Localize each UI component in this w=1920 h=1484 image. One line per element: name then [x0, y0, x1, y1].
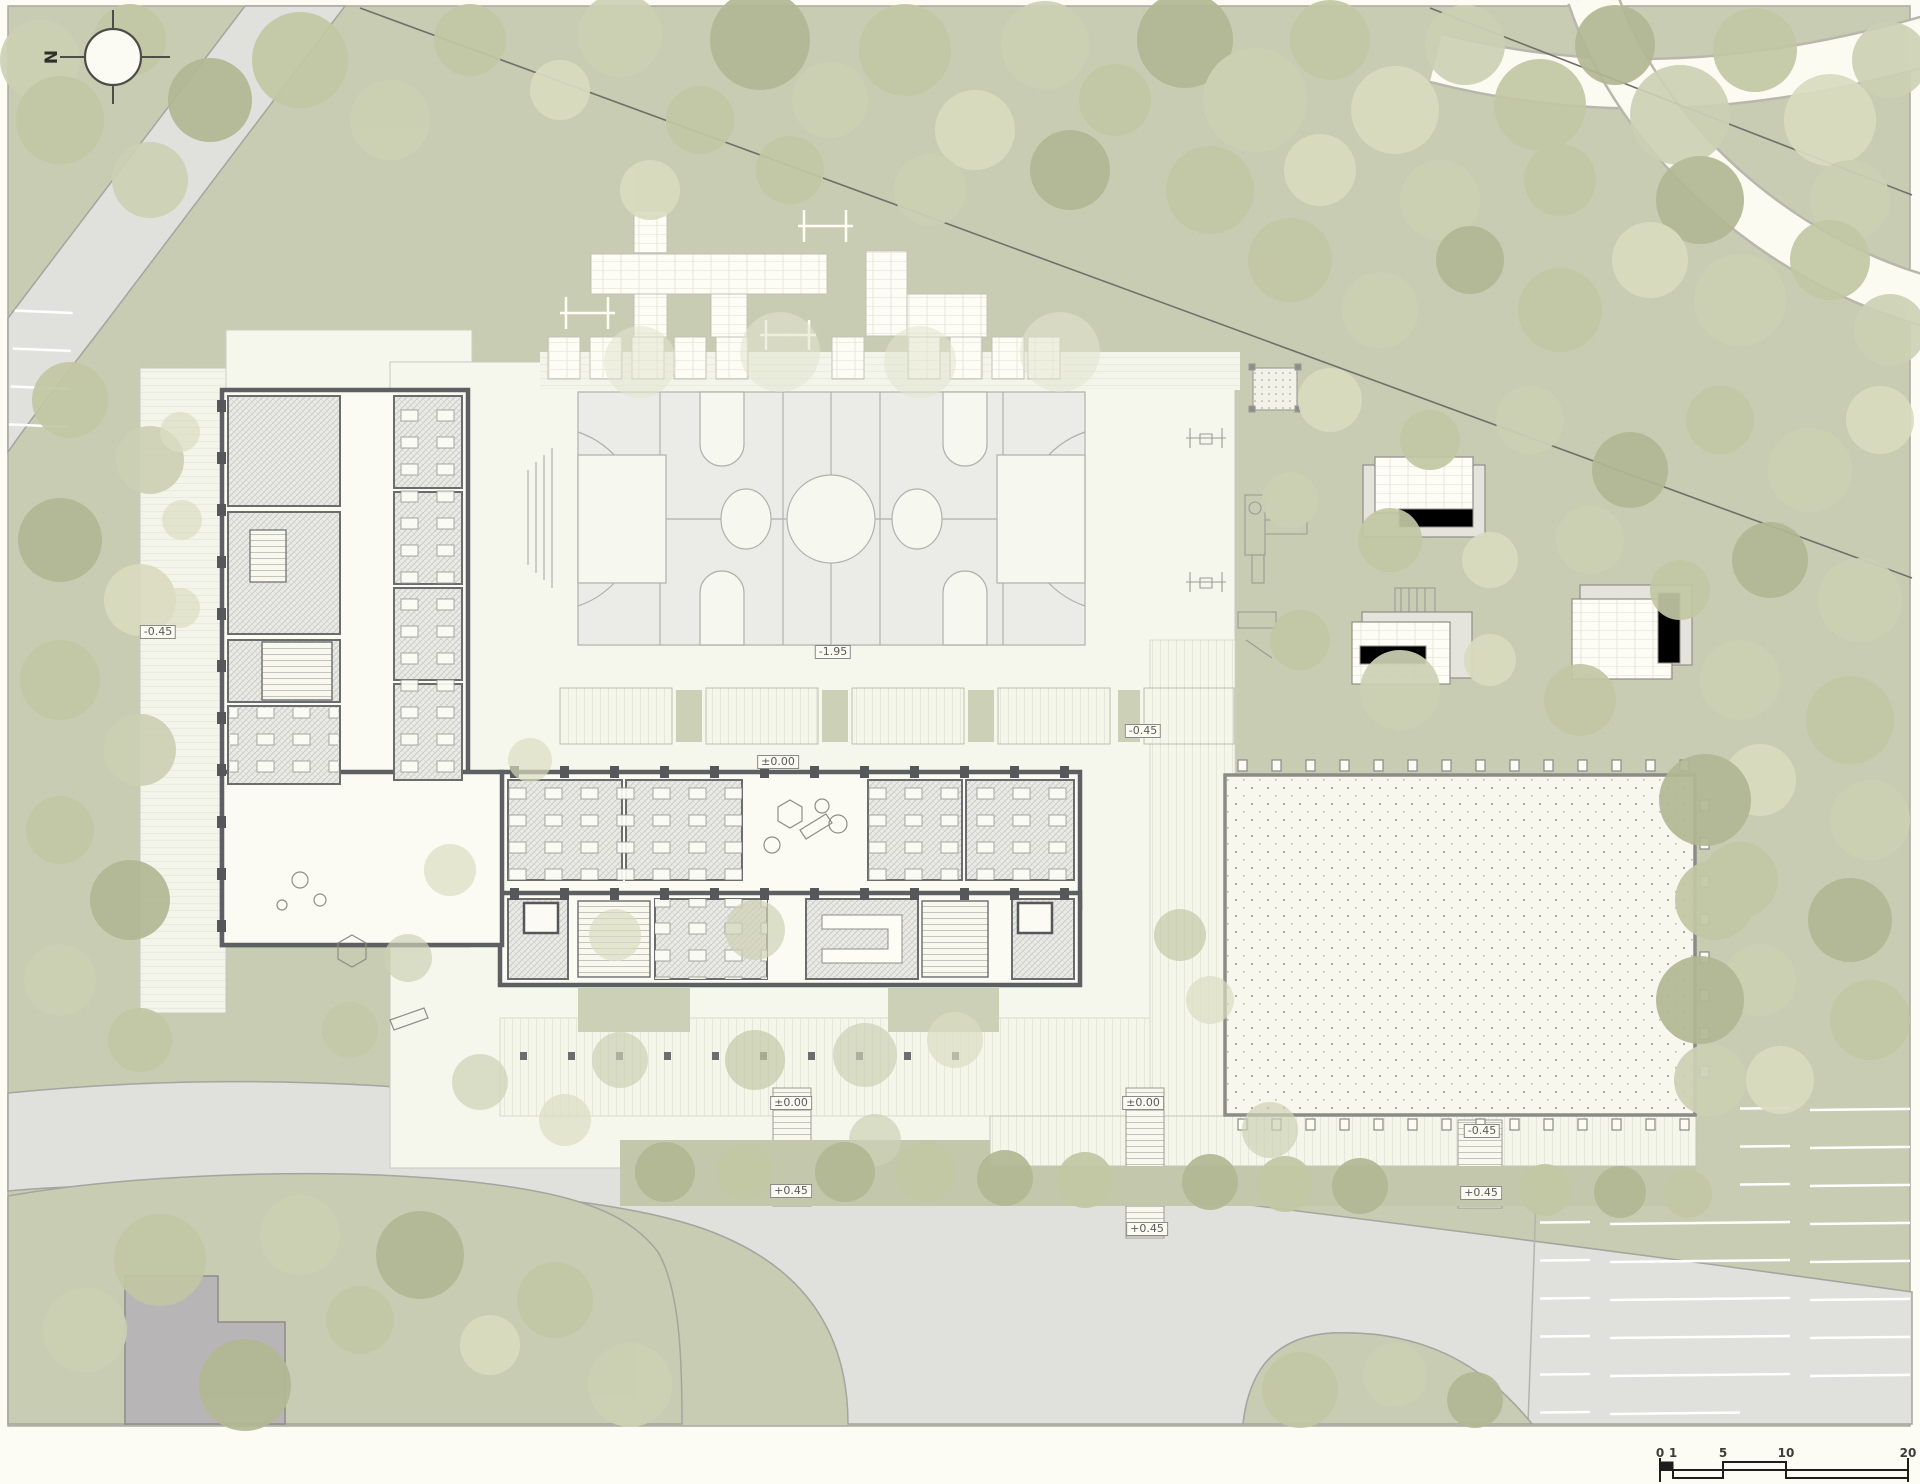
- north-label: N: [42, 50, 62, 64]
- scale-tick-1: 1: [1669, 1446, 1677, 1460]
- elevation-label-canopy-walkway: -0.45: [1464, 1124, 1500, 1138]
- scale-tick-20: 20: [1900, 1446, 1917, 1460]
- elevation-label-sports-court: -1.95: [815, 645, 851, 659]
- scale-tick-10: 10: [1778, 1446, 1795, 1460]
- scale-tick-5: 5: [1719, 1446, 1727, 1460]
- site-plan-drawing: N: [0, 0, 1920, 1484]
- elevation-label-west-forecourt: -0.45: [140, 625, 176, 639]
- elevation-label-south-ramp-1-bottom: +0.45: [770, 1184, 812, 1198]
- elevation-label-south-ramp-2-bottom: +0.45: [1126, 1222, 1168, 1236]
- elevation-label-south-ramp-2-top: ±0.00: [1122, 1096, 1164, 1110]
- elevation-label-south-ramp-3: +0.45: [1460, 1186, 1502, 1200]
- elevation-label-north-terrace: ±0.00: [757, 755, 799, 769]
- site-plan: N -0.45-1.95-0.45±0.00±0.00+0.45±0.00+0.…: [0, 0, 1920, 1484]
- scale-tick-0: 0: [1656, 1446, 1664, 1460]
- elevation-label-east-walkway: -0.45: [1125, 724, 1161, 738]
- elevation-label-south-ramp-1-top: ±0.00: [770, 1096, 812, 1110]
- sports-court: [528, 392, 1085, 645]
- canopy-court: [1225, 760, 1709, 1130]
